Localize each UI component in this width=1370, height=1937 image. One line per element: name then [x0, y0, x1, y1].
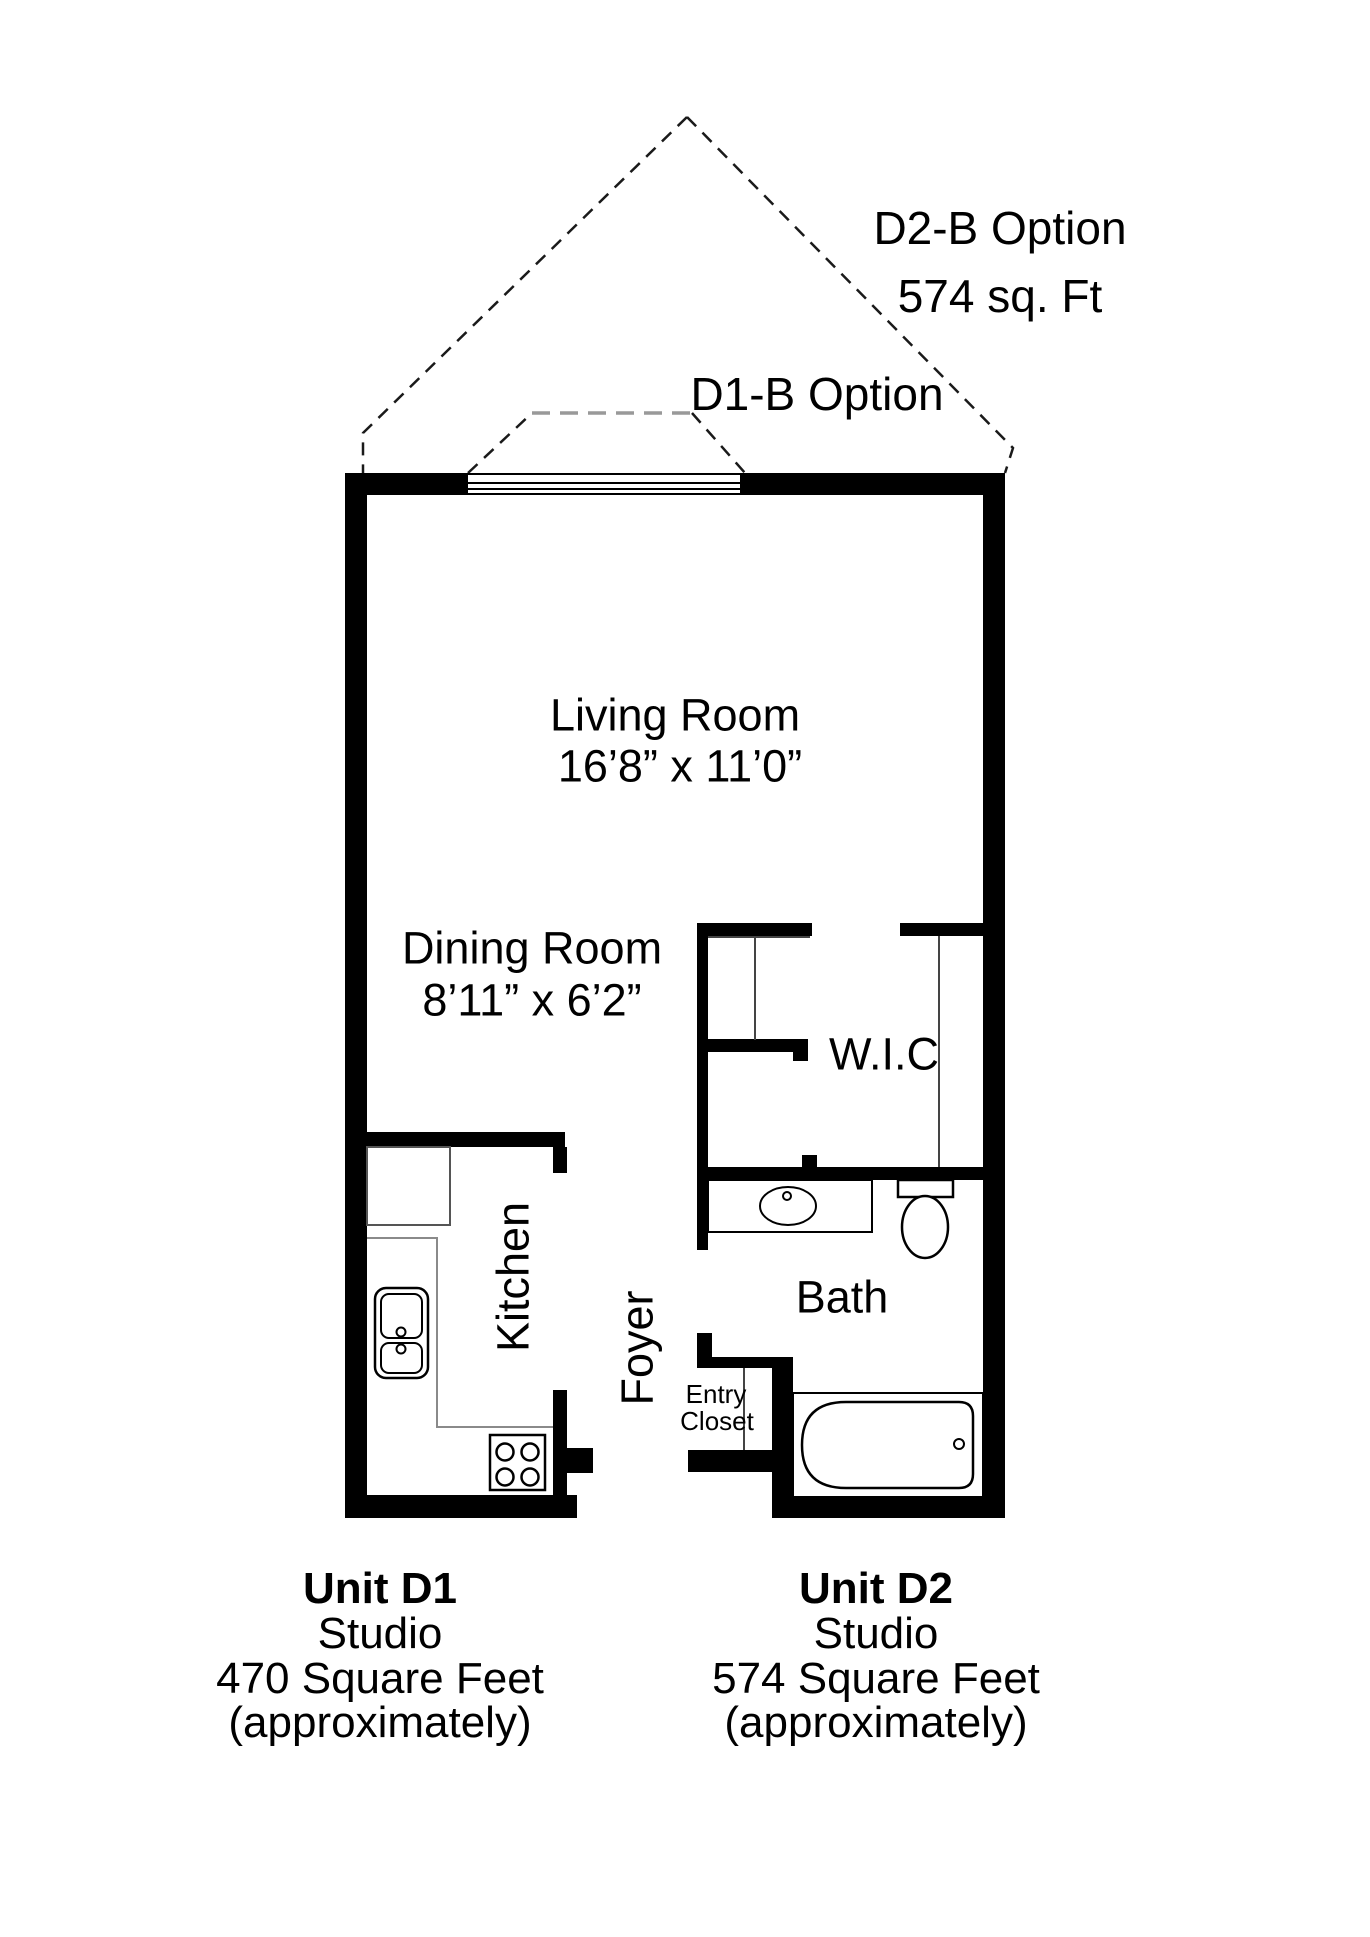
floor-plan-drawing [0, 0, 1370, 1937]
toilet-bowl [902, 1196, 948, 1258]
wall-bottom-right [772, 1495, 1005, 1518]
stove-burner-2 [522, 1444, 539, 1461]
wall-wic-top-left [697, 923, 812, 936]
wall-bath-top [697, 1167, 983, 1180]
unit-d2-title: Unit D2 [799, 1567, 953, 1611]
wall-entry-closet-bottom [688, 1450, 772, 1472]
wall-bottom-left [345, 1495, 577, 1518]
unit-d1-title: Unit D1 [303, 1567, 457, 1611]
wall-wic-middle [697, 1039, 808, 1052]
wall-kitchen-right-upper-stub [553, 1147, 567, 1173]
wall-mid-vertical [697, 923, 708, 1250]
toilet-tank [898, 1180, 953, 1197]
kitchen-sink-faucet-1 [397, 1328, 406, 1337]
wic-label: W.I.C [829, 1032, 939, 1077]
unit-d2-area: 574 Square Feet [712, 1657, 1040, 1701]
wall-right [983, 473, 1005, 1518]
unit-d1-area: 470 Square Feet [216, 1657, 544, 1701]
unit-d1-type: Studio [318, 1612, 443, 1656]
kitchen-label: Kitchen [491, 1202, 536, 1352]
stove-burner-4 [522, 1469, 539, 1486]
dining-room-label: Dining Room [402, 926, 662, 971]
d1b-option-label: D1-B Option [690, 371, 943, 417]
d2b-option-area: 574 sq. Ft [898, 273, 1103, 319]
wall-wic-middle-stub [793, 1052, 808, 1061]
stove-burner-3 [497, 1469, 514, 1486]
window [468, 473, 740, 495]
wall-bath-top-stub [802, 1155, 817, 1167]
living-room-label: Living Room [550, 693, 800, 738]
bathtub-drain [954, 1439, 964, 1449]
kitchen-sink [375, 1288, 428, 1378]
foyer-label: Foyer [615, 1290, 660, 1405]
wall-entry-closet-right [772, 1357, 793, 1518]
living-room-dims: 16’8” x 11’0” [558, 744, 802, 789]
kitchen-sink-faucet-2 [397, 1345, 406, 1354]
unit-d2-note: (approximately) [724, 1701, 1027, 1745]
wall-entry-door-jamb [567, 1448, 593, 1473]
entry-closet-label-line2: Closet [680, 1408, 754, 1434]
wall-kitchen-right-lower [553, 1390, 567, 1518]
vanity-faucet [783, 1192, 791, 1200]
unit-d1-note: (approximately) [228, 1701, 531, 1745]
kitchen-upper-counter [367, 1147, 450, 1225]
wall-left [345, 473, 367, 1518]
entry-closet-label-line1: Entry [686, 1381, 747, 1407]
unit-d2-type: Studio [814, 1612, 939, 1656]
wall-wic-top-right [900, 923, 983, 936]
floor-plan: D2-B Option 574 sq. Ft D1-B Option Livin… [0, 0, 1370, 1937]
stove [490, 1435, 545, 1490]
bathtub [793, 1393, 983, 1497]
bathtub-basin [802, 1402, 973, 1488]
wall-kitchen-top [367, 1132, 565, 1147]
bath-label: Bath [796, 1275, 889, 1320]
wall-top-right [740, 473, 1005, 495]
toilet [898, 1180, 953, 1258]
dining-room-dims: 8’11” x 6’2” [422, 978, 641, 1023]
bath-vanity [708, 1180, 872, 1232]
d1b-option-dashed-left [468, 413, 532, 473]
d2b-option-label: D2-B Option [873, 205, 1126, 251]
stove-burner-1 [497, 1444, 514, 1461]
d1b-option-dashed-right [692, 413, 745, 473]
wall-bath-door-stub [697, 1333, 712, 1368]
